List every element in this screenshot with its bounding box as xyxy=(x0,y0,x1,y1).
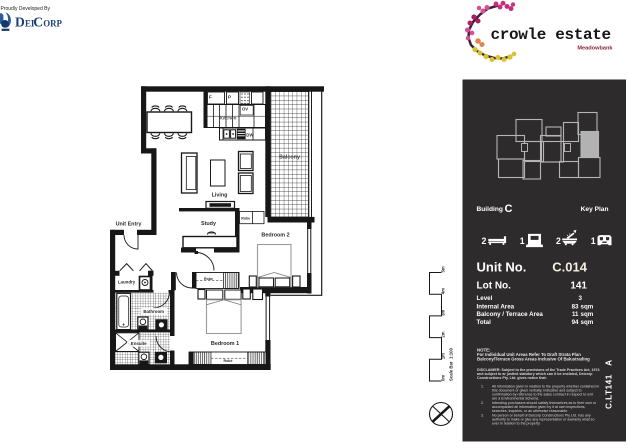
svg-text:Robe: Robe xyxy=(224,359,233,363)
svg-text:Bedroom 2: Bedroom 2 xyxy=(261,233,289,239)
svg-text:sqm: sqm xyxy=(581,319,594,326)
svg-text:Unit Entry: Unit Entry xyxy=(116,221,142,227)
svg-text:Meadowbank: Meadowbank xyxy=(577,46,613,52)
svg-text:Balcony/Terrace Gross Areas In: Balcony/Terrace Gross Areas Inclusive Of… xyxy=(477,356,590,361)
svg-text:sqm: sqm xyxy=(581,304,594,311)
svg-text:Building: Building xyxy=(477,206,503,213)
svg-text:ever in relation to the proper: ever in relation to the property. xyxy=(492,421,540,425)
svg-text:D: D xyxy=(15,14,25,29)
svg-text:Total: Total xyxy=(477,319,492,326)
svg-text:Ensuite: Ensuite xyxy=(131,341,147,346)
svg-text:C: C xyxy=(505,203,513,215)
svg-text:crowle estate: crowle estate xyxy=(491,26,611,44)
svg-text:11: 11 xyxy=(572,311,579,318)
svg-text:1m: 1m xyxy=(441,353,446,359)
svg-text:83: 83 xyxy=(572,304,579,311)
svg-text:Unit No.: Unit No. xyxy=(477,260,527,275)
svg-text:Bedroom 1: Bedroom 1 xyxy=(211,341,239,347)
svg-text:C: C xyxy=(33,14,43,29)
svg-text:Robe: Robe xyxy=(241,216,250,220)
svg-text:OV: OV xyxy=(242,107,248,112)
svg-text:C.LT141 A: C.LT141 A xyxy=(605,360,614,409)
svg-text:DW: DW xyxy=(246,133,254,138)
svg-text:sqm: sqm xyxy=(581,311,594,318)
svg-text:141: 141 xyxy=(570,280,587,291)
svg-text:0m: 0m xyxy=(441,375,446,381)
svg-text:94: 94 xyxy=(572,319,579,326)
svg-text:2m: 2m xyxy=(441,331,446,337)
svg-text:Internal Area: Internal Area xyxy=(477,304,515,311)
svg-text:1: 1 xyxy=(591,236,596,246)
svg-text:2: 2 xyxy=(482,236,487,246)
svg-text:Lot No.: Lot No. xyxy=(477,280,512,291)
svg-text:2.: 2. xyxy=(481,401,484,405)
svg-text:Constructions Pty. Ltd. gives: Constructions Pty. Ltd. gives notice tha… xyxy=(477,376,547,380)
svg-text:P: P xyxy=(228,95,231,100)
svg-text:are a Environmental Scheme.: are a Environmental Scheme. xyxy=(492,397,539,401)
svg-text:2: 2 xyxy=(556,236,561,246)
svg-text:F: F xyxy=(209,95,212,100)
svg-text:Bathroom: Bathroom xyxy=(143,309,164,314)
svg-text:Laundry: Laundry xyxy=(118,280,136,285)
svg-text:5m: 5m xyxy=(441,266,446,272)
svg-text:1.: 1. xyxy=(481,385,484,389)
svg-text:4m: 4m xyxy=(441,288,446,294)
svg-text:3: 3 xyxy=(579,295,583,302)
svg-text:ORP: ORP xyxy=(43,18,62,28)
svg-text:Robe: Robe xyxy=(204,277,213,281)
svg-text:Balcony / Terrace Area: Balcony / Terrace Area xyxy=(477,311,544,318)
svg-text:Proudly Developed By: Proudly Developed By xyxy=(1,6,51,12)
svg-text:Key Plan: Key Plan xyxy=(581,206,609,213)
svg-text:Level: Level xyxy=(477,295,493,302)
svg-text:Balcony: Balcony xyxy=(279,155,300,161)
svg-text:Scale Bar 1:100: Scale Bar 1:100 xyxy=(449,347,454,381)
svg-text:Study: Study xyxy=(201,221,216,227)
svg-text:Kitchen: Kitchen xyxy=(220,116,237,121)
svg-text:3.: 3. xyxy=(481,413,484,417)
svg-text:3m: 3m xyxy=(441,310,446,316)
svg-text:Living: Living xyxy=(212,192,228,198)
svg-text:1: 1 xyxy=(520,236,525,246)
svg-text:C.014: C.014 xyxy=(552,260,587,275)
